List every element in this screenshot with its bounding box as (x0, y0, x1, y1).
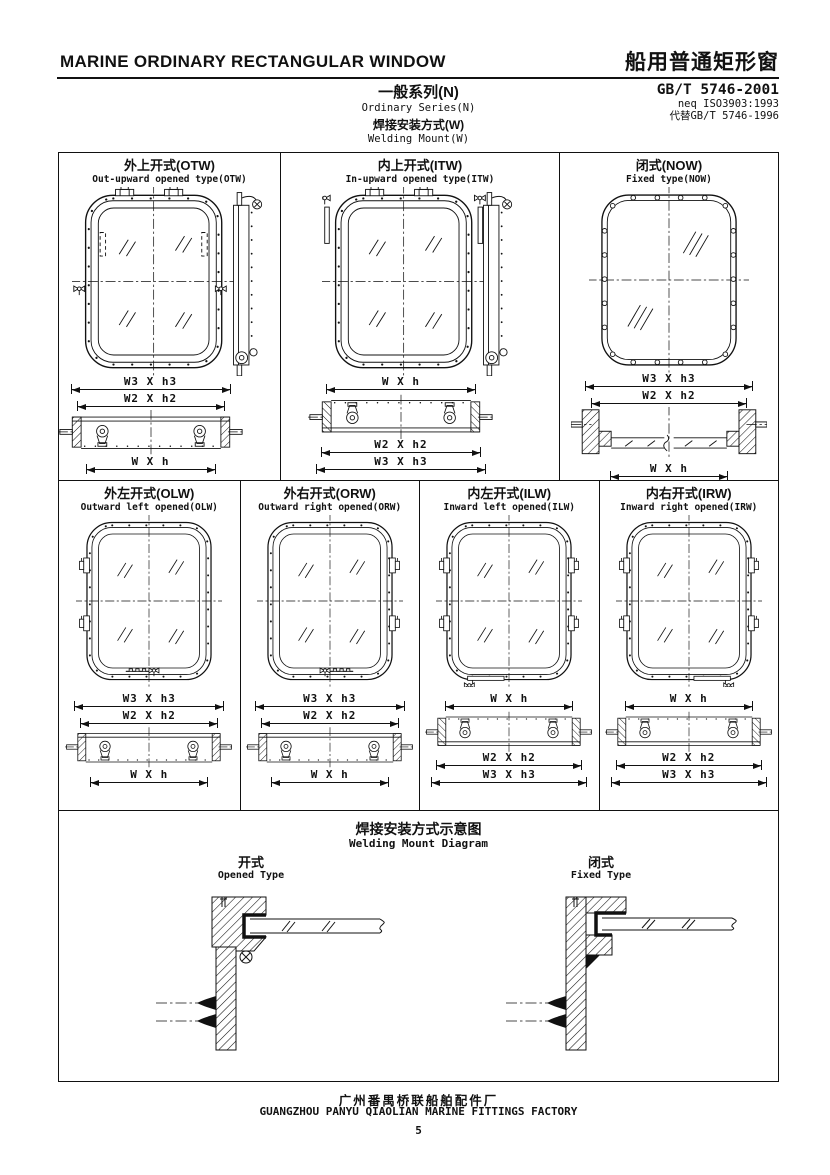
irw-dimension-w3h3-label: W3 X h3 (611, 770, 767, 780)
otw-front-and-side-view-drawing (72, 187, 268, 376)
opened-type-weld-section-drawing (154, 885, 394, 1055)
otw-dimension-w2h2-line (77, 406, 225, 407)
panel-orw: 外右开式(ORW) Outward right opened(ORW) (241, 481, 421, 810)
irw-dimension-w3h3: W3 X h3 (611, 770, 767, 785)
panel-otw: 外上开式(OTW) Out-upward opened type(OTW) (59, 153, 281, 480)
olw-dimension-wh: W X h (90, 770, 208, 785)
header-rule (57, 77, 779, 79)
now-dimension-w2h2-line (591, 403, 747, 404)
itw-dimension-wh: W X h (326, 377, 476, 392)
welding-mount-diagram-panel: 焊接安装方式示意图 Welding Mount Diagram 开式 Opene… (59, 811, 778, 1081)
olw-title-en: Outward left opened(OLW) (81, 502, 218, 513)
olw-dimension-wh-line (90, 782, 208, 783)
now-section-drawing (571, 407, 767, 463)
ilw-dimension-wh-line (445, 706, 573, 707)
orw-title-en: Outward right opened(ORW) (258, 502, 401, 513)
drawing-row-2: 外左开式(OLW) Outward left opened(OLW) W3 X … (59, 481, 778, 811)
ilw-dimension-w3h3-label: W3 X h3 (431, 770, 587, 780)
itw-dimension-w3h3: W3 X h3 (316, 457, 486, 472)
now-dimension-wh-label: W X h (610, 464, 728, 474)
irw-dimension-w2h2-line (616, 765, 762, 766)
otw-dimension-w3h3-label: W3 X h3 (71, 377, 231, 387)
ilw-dimension-w3h3: W3 X h3 (431, 770, 587, 785)
itw-dimension-wh-line (326, 389, 476, 390)
fixed-type-label-cn: 闭式 (541, 855, 661, 870)
series-title-en: Ordinary Series(N) (58, 102, 779, 115)
otw-dimension-wh-line (86, 469, 216, 470)
ilw-dimension-w3h3-line (431, 782, 587, 783)
ilw-section-drawing (425, 710, 593, 752)
otw-title-cn: 外上开式(OTW) (124, 158, 215, 174)
drawing-sheet: 外上开式(OTW) Out-upward opened type(OTW) (58, 152, 779, 1082)
drawing-row-1: 外上开式(OTW) Out-upward opened type(OTW) (59, 153, 778, 481)
series-heading: 一般系列(N) Ordinary Series(N) 焊接安装方式(W) Wel… (58, 84, 779, 145)
otw-dimension-wh: W X h (86, 457, 216, 472)
now-dimension-w3h3-label: W3 X h3 (585, 374, 753, 384)
now-title-en: Fixed type(NOW) (626, 174, 712, 185)
panel-irw: 内右开式(IRW) Inward right opened(IRW) (600, 481, 779, 810)
itw-section-drawing (308, 393, 494, 439)
opened-type-label-cn: 开式 (191, 855, 311, 870)
orw-dimension-w2h2-line (261, 723, 399, 724)
otw-section-drawing (58, 410, 244, 456)
olw-dimension-w2h2: W2 X h2 (80, 711, 218, 726)
page-title-en: MARINE ORDINARY RECTANGULAR WINDOW (60, 52, 446, 72)
olw-dimension-w2h2-label: W2 X h2 (80, 711, 218, 721)
irw-title-cn: 内右开式(IRW) (646, 486, 732, 502)
opened-type-label-en: Opened Type (191, 870, 311, 882)
panel-itw: 内上开式(ITW) In-upward opened type(ITW) (281, 153, 560, 480)
now-dimension-w2h2-label: W2 X h2 (591, 391, 747, 401)
orw-dimension-wh-label: W X h (271, 770, 389, 780)
irw-dimension-wh-line (625, 706, 753, 707)
page-title-cn: 船用普通矩形窗 (625, 46, 779, 76)
welding-diagram-title-cn: 焊接安装方式示意图 (59, 819, 778, 839)
orw-dimension-w3h3-line (255, 706, 405, 707)
itw-dimension-w3h3-line (316, 469, 486, 470)
itw-title-en: In-upward opened type(ITW) (346, 174, 495, 185)
ilw-dimension-w2h2-label: W2 X h2 (436, 753, 582, 763)
irw-title-en: Inward right opened(IRW) (620, 502, 757, 513)
now-title-cn: 闭式(NOW) (636, 158, 702, 174)
itw-dimension-w2h2-line (321, 452, 481, 453)
ilw-dimension-wh: W X h (445, 694, 573, 709)
orw-dimension-w2h2-label: W2 X h2 (261, 711, 399, 721)
orw-front-view-drawing (257, 515, 403, 687)
olw-dimension-wh-label: W X h (90, 770, 208, 780)
olw-section-drawing (65, 727, 233, 769)
now-dimension-w2h2: W2 X h2 (591, 391, 747, 406)
ilw-title-cn: 内左开式(ILW) (467, 486, 551, 502)
itw-dimension-w3h3-label: W3 X h3 (316, 457, 486, 467)
series-title-cn: 一般系列(N) (58, 84, 779, 102)
page-number: 5 (58, 1124, 779, 1137)
mount-title-cn: 焊接安装方式(W) (58, 118, 779, 133)
ilw-dimension-wh-label: W X h (445, 694, 573, 704)
irw-dimension-w3h3-line (611, 782, 767, 783)
ilw-title-en: Inward left opened(ILW) (443, 502, 575, 513)
olw-dimension-w2h2-line (80, 723, 218, 724)
fixed-type-weld-section-drawing (504, 885, 744, 1055)
orw-section-drawing (246, 727, 414, 769)
orw-dimension-wh-line (271, 782, 389, 783)
now-dimension-w3h3-line (585, 386, 753, 387)
irw-dimension-w2h2: W2 X h2 (616, 753, 762, 768)
now-dimension-wh-line (610, 476, 728, 477)
now-dimension-wh: W X h (610, 464, 728, 479)
otw-dimension-w3h3-line (71, 389, 231, 390)
otw-dimension-w2h2-label: W2 X h2 (77, 394, 225, 404)
olw-dimension-w3h3-label: W3 X h3 (74, 694, 224, 704)
otw-dimension-w2h2: W2 X h2 (77, 394, 225, 409)
factory-name-en: GUANGZHOU PANYU QIAOLIAN MARINE FITTINGS… (58, 1105, 779, 1118)
now-front-view-drawing (589, 187, 749, 373)
document-page: MARINE ORDINARY RECTANGULAR WINDOW 船用普通矩… (0, 0, 830, 1175)
orw-dimension-w3h3-label: W3 X h3 (255, 694, 405, 704)
irw-dimension-w2h2-label: W2 X h2 (616, 753, 762, 763)
ilw-dimension-w2h2: W2 X h2 (436, 753, 582, 768)
fixed-type-label: 闭式 Fixed Type (541, 855, 661, 882)
panel-now: 闭式(NOW) Fixed type(NOW) W3 X h3 W2 X h2 (560, 153, 778, 480)
opened-type-label: 开式 Opened Type (191, 855, 311, 882)
orw-dimension-w2h2: W2 X h2 (261, 711, 399, 726)
now-dimension-w3h3: W3 X h3 (585, 374, 753, 389)
itw-dimension-w2h2-label: W2 X h2 (321, 440, 481, 450)
otw-dimension-w3h3: W3 X h3 (71, 377, 231, 392)
itw-front-and-side-view-drawing (322, 187, 518, 376)
irw-dimension-wh: W X h (625, 694, 753, 709)
orw-dimension-w3h3: W3 X h3 (255, 694, 405, 709)
ilw-dimension-w2h2-line (436, 765, 582, 766)
orw-dimension-wh: W X h (271, 770, 389, 785)
irw-front-view-drawing (616, 515, 762, 687)
fixed-type-label-en: Fixed Type (541, 870, 661, 882)
mount-title-en: Welding Mount(W) (58, 133, 779, 145)
irw-section-drawing (605, 710, 773, 752)
itw-title-cn: 内上开式(ITW) (378, 158, 462, 174)
olw-title-cn: 外左开式(OLW) (104, 486, 194, 502)
panel-olw: 外左开式(OLW) Outward left opened(OLW) W3 X … (59, 481, 241, 810)
olw-dimension-w3h3: W3 X h3 (74, 694, 224, 709)
otw-dimension-wh-label: W X h (86, 457, 216, 467)
olw-front-view-drawing (76, 515, 222, 687)
otw-title-en: Out-upward opened type(OTW) (92, 174, 246, 185)
orw-title-cn: 外右开式(ORW) (284, 486, 376, 502)
itw-dimension-wh-label: W X h (326, 377, 476, 387)
panel-ilw: 内左开式(ILW) Inward left opened(ILW) (420, 481, 600, 810)
olw-dimension-w3h3-line (74, 706, 224, 707)
ilw-front-view-drawing (436, 515, 582, 687)
irw-dimension-wh-label: W X h (625, 694, 753, 704)
welding-diagram-title-en: Welding Mount Diagram (59, 837, 778, 850)
itw-dimension-w2h2: W2 X h2 (321, 440, 481, 455)
